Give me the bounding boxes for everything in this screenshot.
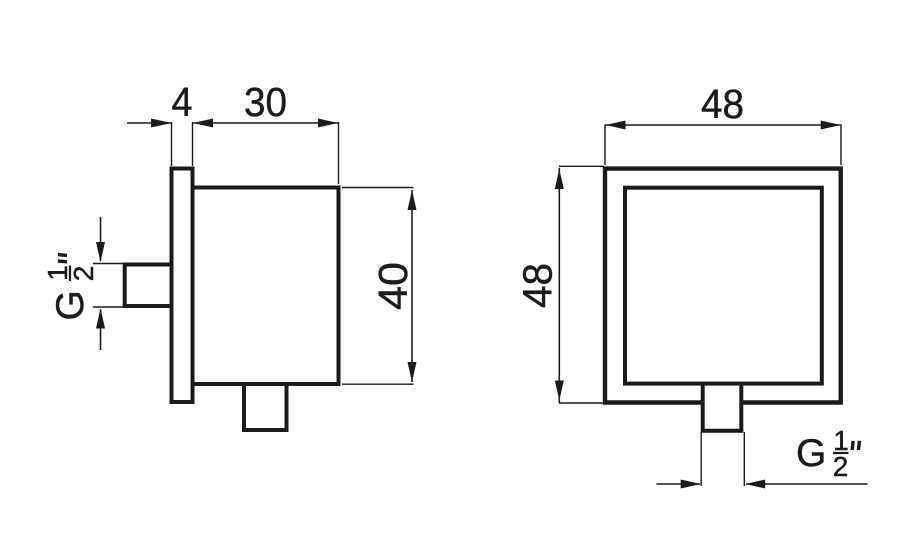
svg-text:48: 48 [701,81,744,127]
svg-text:2: 2 [68,266,99,282]
svg-text:30: 30 [244,79,287,125]
svg-text:48: 48 [515,263,561,308]
svg-text:G: G [49,290,92,320]
svg-text:4: 4 [172,79,193,125]
svg-text:40: 40 [370,262,416,310]
